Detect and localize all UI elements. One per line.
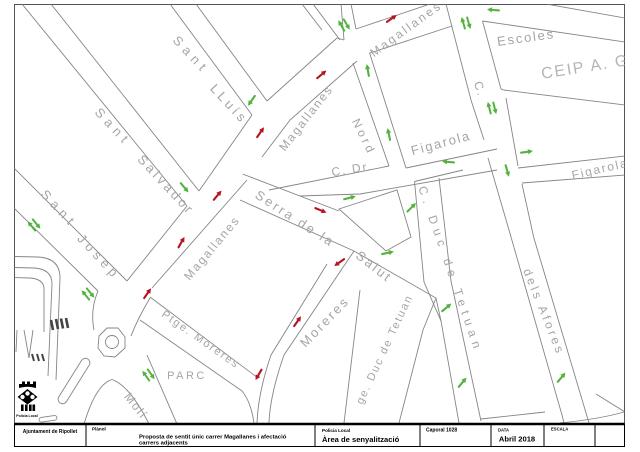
svg-text:DATA: DATA	[498, 428, 509, 433]
svg-text:ESCALA: ESCALA	[551, 427, 568, 432]
svg-text:Àrea de senyalització: Àrea de senyalització	[322, 435, 400, 444]
svg-text:Abril 2018: Abril 2018	[499, 435, 535, 444]
svg-text:Policia Local: Policia Local	[16, 414, 37, 418]
svg-text:PARC: PARC	[167, 370, 207, 382]
svg-text:Caporal 1028: Caporal 1028	[426, 428, 457, 434]
svg-text:Policia Local: Policia Local	[322, 428, 350, 433]
svg-text:Plànol: Plànol	[92, 427, 106, 432]
svg-text:Ajuntament de Ripollet: Ajuntament de Ripollet	[23, 429, 78, 435]
svg-text:carrers adjacents: carrers adjacents	[139, 441, 189, 447]
